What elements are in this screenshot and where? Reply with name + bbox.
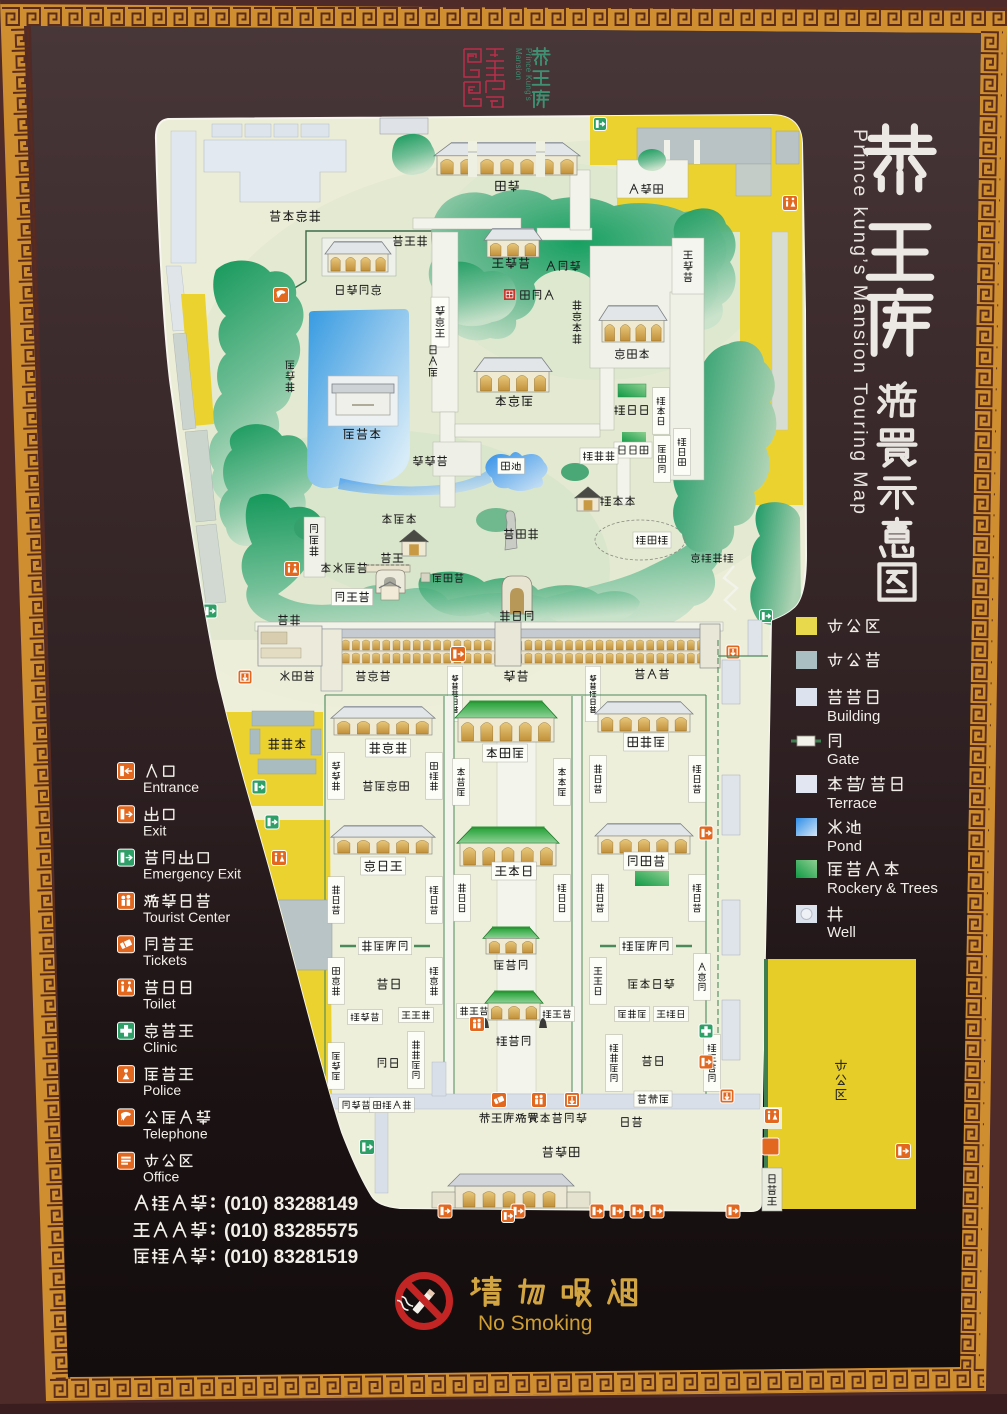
- svg-text:Tickets: Tickets: [143, 952, 187, 968]
- svg-text:Well: Well: [827, 924, 856, 941]
- svg-text:/: /: [860, 775, 865, 794]
- svg-text:Mansion: Mansion: [514, 48, 523, 80]
- svg-text:Toilet: Toilet: [143, 996, 176, 1012]
- svg-text:Police: Police: [143, 1082, 181, 1098]
- svg-text:Pond: Pond: [827, 838, 862, 855]
- svg-text:Building: Building: [827, 708, 880, 725]
- svg-text:(010) 83285575: (010) 83285575: [224, 1221, 359, 1242]
- svg-text:Tourist Center: Tourist Center: [143, 909, 230, 925]
- svg-text:Emergency Exit: Emergency Exit: [143, 866, 241, 882]
- svg-text:Office: Office: [143, 1169, 180, 1185]
- svg-text:No Smoking: No Smoking: [478, 1312, 592, 1335]
- svg-text:Entrance: Entrance: [143, 779, 199, 795]
- svg-text:Rockery & Trees: Rockery & Trees: [827, 880, 938, 897]
- svg-text:Telephone: Telephone: [143, 1125, 208, 1141]
- svg-text:(010) 83288149: (010) 83288149: [224, 1194, 358, 1215]
- svg-text:Gate: Gate: [827, 751, 860, 768]
- svg-text:(010) 83281519: (010) 83281519: [224, 1247, 358, 1268]
- svg-text:Terrace: Terrace: [827, 795, 877, 812]
- svg-text:Prince kung’s Mansion Tourin: Prince kung’s Mansion Touring Map: [849, 129, 871, 516]
- svg-text:Clinic: Clinic: [143, 1039, 177, 1055]
- svg-text:Exit: Exit: [143, 822, 166, 838]
- svg-text:Prince Kung's: Prince Kung's: [524, 48, 533, 101]
